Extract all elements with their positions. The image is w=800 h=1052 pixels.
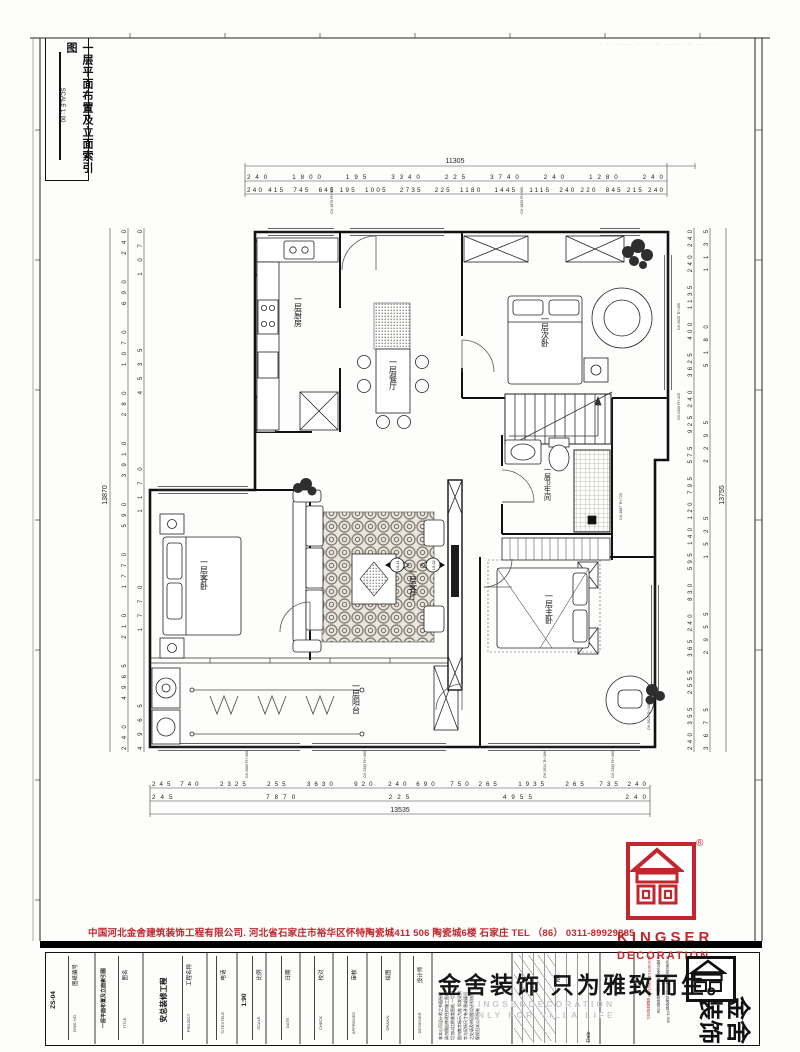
approved-label-en: APPROVED: [351, 1006, 356, 1040]
armchair: [424, 520, 444, 546]
stove: [258, 300, 278, 334]
annotation: CH:2300 FH:360: [611, 751, 615, 778]
annotation: CH:2024 TH:306: [543, 751, 547, 778]
label-divider: [347, 956, 348, 1040]
annotation: CH:2060 FH:360: [245, 751, 249, 778]
separator-bar: [40, 941, 762, 948]
dim-right-b: 3675 2955 1525 2295 5180 1135: [704, 229, 710, 750]
label-divider: [252, 956, 253, 1040]
dim-bottom-row2: 245 7870 225 4955 240: [152, 794, 647, 801]
designer-label-cn: 设计师: [416, 958, 424, 992]
dwg-no-label-cn: 图纸编号: [71, 958, 79, 992]
elevation-label-2: LS-02: [432, 560, 436, 570]
dwg-no-value: ZS-04: [50, 960, 57, 1040]
label-divider: [413, 956, 414, 1040]
dim-top-row2: 240 1800 195 3340 225 3740 240 1280 240: [247, 174, 664, 181]
fridge: [300, 392, 338, 430]
designer-label-en: DESIGNER: [417, 1006, 422, 1040]
revision-date-label: Date: [586, 1018, 592, 1042]
elevation-label-1: LS-11: [396, 561, 400, 570]
drawn-label-en: DRAWN: [385, 1006, 390, 1040]
plant-top-right: [622, 239, 653, 269]
balcony-fixtures: [152, 668, 364, 744]
room-label-bath: 一层卫生间: [544, 466, 552, 502]
title-label-en: TITLE: [122, 1006, 127, 1040]
label-divider: [182, 956, 183, 1040]
label-divider: [118, 956, 119, 1040]
room-label-guest: 一层客卧: [200, 558, 209, 591]
watermark-line1: KINGSERDECORATION: [469, 999, 615, 1009]
scale-label-en: SCALE: [256, 1006, 261, 1040]
dim-bottom-row1: 245 740 2325 255 3630 920 240 690 750 26…: [152, 781, 647, 788]
kingser-logo-glyph: [630, 846, 684, 908]
check-label-cn: 校对: [317, 958, 325, 992]
title-label-cn: 图名: [121, 958, 129, 992]
registered-mark: ®: [696, 838, 703, 849]
annotation: CH:2025 TH:305: [677, 303, 681, 330]
room-label-dining: 一层餐厅: [389, 358, 398, 390]
dwg-no-label-en: DWG NO.: [72, 1006, 77, 1040]
swing-chair: [592, 288, 652, 348]
annotation: CH:1820 FH:560: [520, 187, 524, 214]
scale-label-cn: 比例: [255, 958, 263, 992]
dim-top-row3: 240 415 745 645 195 1005 2735 225 1180 1…: [247, 187, 664, 194]
clothes-hangers: [210, 696, 334, 714]
dim-left-a: 240 4965 210 1770 590 3910 280 1070 690 …: [122, 229, 128, 750]
annotation: CH:2024 TH:306: [647, 703, 651, 730]
label-divider: [68, 956, 69, 1040]
check-label-en: CHECK: [318, 1006, 323, 1040]
tv-partition: [448, 480, 462, 690]
tv-set: [451, 545, 459, 597]
annotation: CH:2300 FH:360: [363, 751, 367, 778]
toilet: [549, 445, 569, 471]
dim-right-total: 13755: [719, 485, 726, 505]
label-divider: [216, 956, 217, 1040]
dim-left-total: 13870: [102, 485, 109, 505]
watermark: KINGSERDECORATION ONLY FOR VILLA LIFE: [462, 999, 622, 1020]
brand-slogan: 金舍装饰 只为雅致而生。: [438, 966, 733, 1000]
drawing-scale: SCALE 1: 90: [59, 75, 65, 135]
date-label-cn: 日期: [284, 958, 292, 992]
kitchen-fixtures: [257, 238, 338, 430]
tel-label-cn: 电话: [219, 958, 227, 992]
drawing-title-box: 一层平面布置及立面索引图 SCALE 1: 90: [45, 38, 89, 181]
sheet-frame: [30, 33, 770, 941]
room-label-kitchen: 一层厨房: [294, 295, 303, 328]
drawing-sheet: ·· ········· ···· ···· ·········· ····· …: [0, 0, 800, 1052]
room-label-living: 一层客厅: [409, 568, 418, 600]
room-label-balcony: 一层阳台: [352, 682, 361, 715]
dim-right-a: 240 355 2555 365 240 830 595 140 120 795…: [688, 229, 694, 750]
label-divider: [314, 956, 315, 1040]
armchair: [424, 606, 444, 632]
title-value: 一层平面布置及立面索引图: [100, 954, 107, 1042]
annotation: CH:1687 TH:725: [619, 493, 623, 520]
annotation: CH:2320 FH:325: [677, 393, 681, 420]
kitchen-sink-bowl: [290, 247, 296, 253]
bathroom-fixtures: [502, 438, 610, 560]
scale-value: 1:90: [241, 960, 248, 1040]
drawn-label-cn: 绘图: [384, 958, 392, 992]
annotation: CH:1970 FH:950: [330, 187, 334, 214]
sofa-back: [293, 500, 306, 642]
dim-top-total: 11305: [446, 158, 465, 165]
project-label-en: PROJECT: [186, 1006, 191, 1040]
corner-note: ·· ········· ···· ···· ·········· ····· …: [598, 42, 718, 47]
project-value: 安总装修工程: [158, 960, 169, 1040]
room-label-master: 一层主卧: [545, 592, 554, 625]
master-furniture: [488, 560, 665, 724]
approved-label-cn: 审核: [350, 958, 358, 992]
label-divider: [281, 956, 282, 1040]
room-label-bed2: 一层次卧: [541, 315, 550, 348]
watermark-line2: ONLY FOR VILLA LIFE: [468, 1010, 615, 1020]
kingser-logo: [626, 842, 696, 920]
dining-rug: [374, 303, 410, 349]
project-label-cn: 工程名称: [185, 958, 193, 992]
dim-bottom-total: 13535: [390, 807, 410, 814]
dim-left-b: 4965 1770 1170 4535 1070: [138, 229, 144, 750]
tel-label-en: TLTEXTELE: [220, 1006, 225, 1040]
label-divider: [381, 956, 382, 1040]
date-label-en: DATE: [285, 1006, 290, 1040]
drawing-title: 一层平面布置及立面索引图: [63, 42, 95, 180]
brand-big-left: 装饰: [695, 996, 730, 1046]
